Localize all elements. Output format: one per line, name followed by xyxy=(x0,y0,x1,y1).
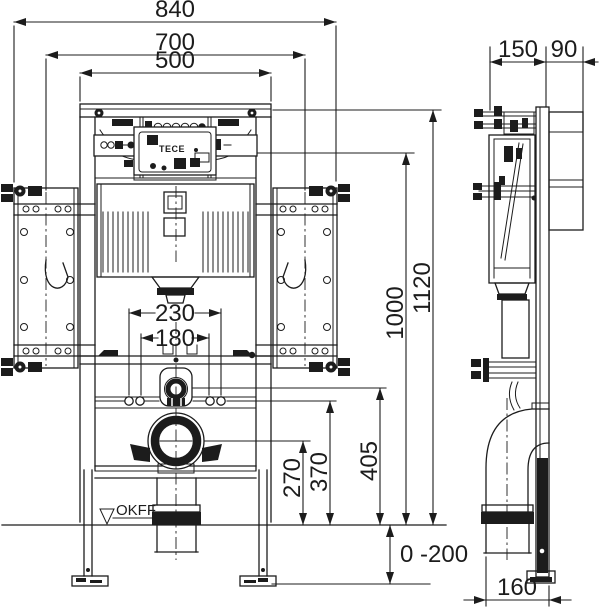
installation-frame-drawing: 840 700 500 xyxy=(0,0,600,609)
floor-label: OKFF xyxy=(116,502,156,519)
bracket-plate-right xyxy=(256,184,350,376)
cable-hook-right xyxy=(283,260,306,288)
dim-405: 405 xyxy=(193,388,386,525)
dim-label-840: 840 xyxy=(155,0,195,23)
dim-label-270: 270 xyxy=(279,458,306,498)
feet xyxy=(72,470,276,586)
dim-label-370: 370 xyxy=(306,452,333,492)
dim-label-foot-adjust: 0 -200 xyxy=(400,541,468,568)
technical-drawing-page: 840 700 500 xyxy=(0,0,600,609)
drain-connection xyxy=(130,413,222,473)
dim-label-500: 500 xyxy=(155,47,195,74)
cistern-ribs-left xyxy=(103,212,148,272)
drain-pipe-front xyxy=(152,478,201,552)
cistern-ribs-right xyxy=(203,212,248,272)
dim-label-90: 90 xyxy=(551,36,578,63)
wc-rods-side xyxy=(471,358,536,410)
unit-brand-label: TECE xyxy=(159,144,185,154)
cable-hook-left xyxy=(45,260,68,288)
dim-label-180: 180 xyxy=(155,325,195,352)
dim-label-1120: 1120 xyxy=(409,262,436,314)
inspection-opening xyxy=(164,218,185,236)
dim-label-1000: 1000 xyxy=(382,286,409,339)
cistern-outlet xyxy=(152,277,199,288)
rail-tab-left xyxy=(98,350,118,356)
floor-level-marker xyxy=(100,509,114,524)
dim-label-230: 230 xyxy=(155,300,195,327)
dim-label-405: 405 xyxy=(356,441,383,481)
push-plate-opening xyxy=(164,192,186,213)
side-view: 150 90 160 xyxy=(464,36,598,606)
flush-pipe-side xyxy=(502,300,529,358)
dim-150: 150 xyxy=(490,36,546,110)
dim-foot-adjust: 0 -200 xyxy=(272,525,468,584)
top-fixation-hardware xyxy=(474,106,536,134)
dim-90: 90 xyxy=(546,36,598,130)
dimensions-front: 840 700 500 xyxy=(14,0,468,584)
wall-anchor-bracket xyxy=(549,112,583,230)
front-view: 840 700 500 xyxy=(1,0,468,586)
bracket-plate-left xyxy=(1,184,95,376)
cistern xyxy=(97,184,254,303)
dim-label-150: 150 xyxy=(498,36,538,63)
flush-unit: TECE xyxy=(94,117,257,180)
cistern-side xyxy=(473,135,536,358)
